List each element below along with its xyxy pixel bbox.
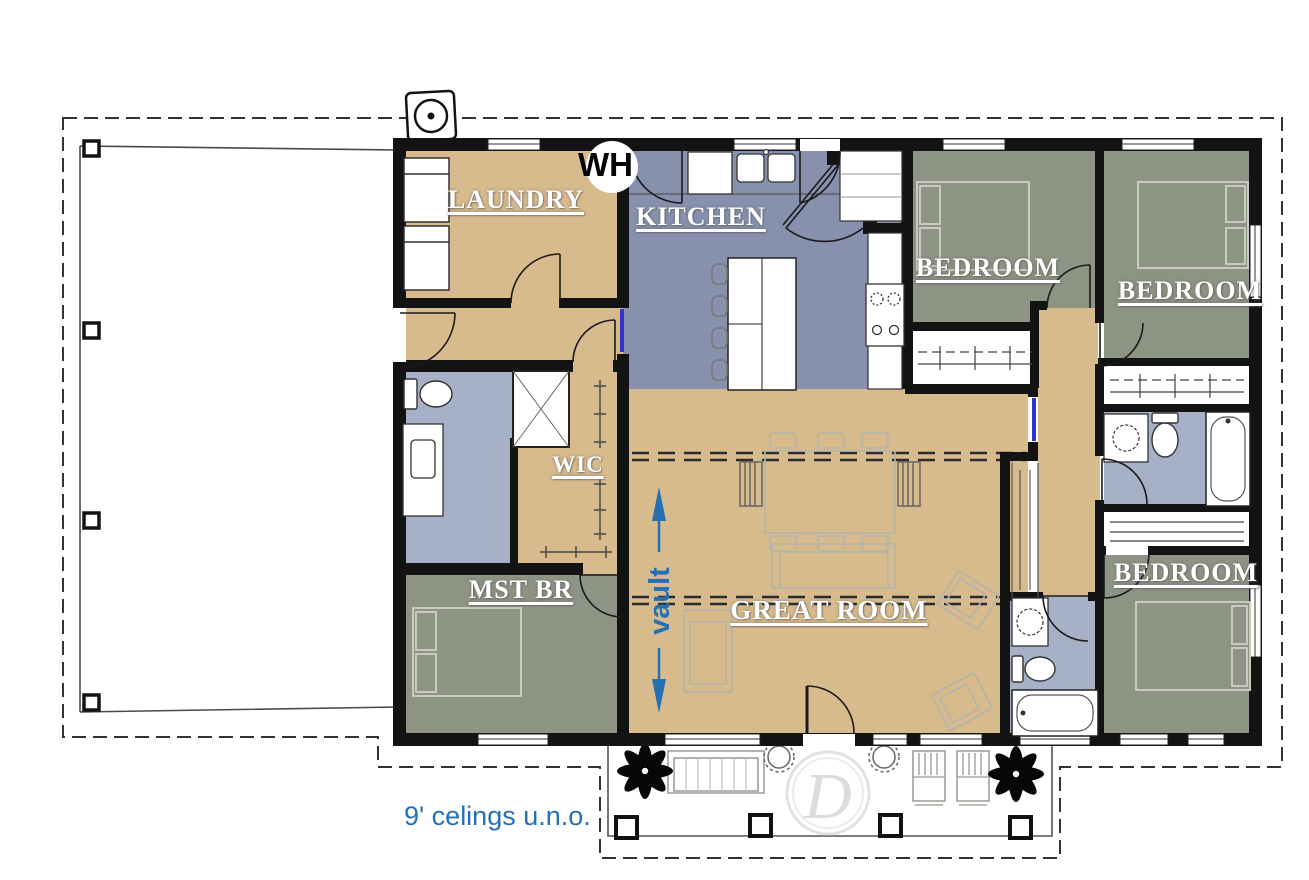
- carport: [80, 146, 398, 712]
- refrigerator: [688, 152, 732, 194]
- plant-icon: [988, 746, 1044, 802]
- plant-icon: [617, 743, 673, 799]
- bathtub: [1012, 690, 1098, 736]
- builder-logo: D: [787, 752, 869, 834]
- floor-plan-drawing: D: [0, 0, 1309, 880]
- bathtub: [1206, 412, 1250, 506]
- room-master-bedroom-floor: [401, 574, 623, 744]
- linen-closet: [1104, 512, 1250, 550]
- ceiling-fan-icon: [406, 91, 456, 141]
- carport-posts: [84, 141, 99, 710]
- toilet-icon: [1152, 413, 1178, 457]
- logo-letter: D: [803, 760, 852, 833]
- stove: [866, 284, 904, 346]
- vanity-sink: [1104, 414, 1148, 462]
- entry-nook-floor: [1038, 308, 1098, 388]
- pantry: [840, 151, 902, 221]
- floor-plan: D: [0, 0, 1309, 880]
- porch-bench: [668, 751, 764, 793]
- vanity-sink: [403, 424, 443, 516]
- toilet-icon: [1012, 656, 1055, 682]
- water-heater: [586, 141, 638, 193]
- front-porch: D: [608, 742, 1052, 838]
- toilet-icon: [404, 379, 452, 409]
- rocking-chairs: [913, 751, 989, 805]
- bedroom2-closet: [1104, 366, 1250, 406]
- shower: [513, 371, 569, 447]
- room-bedroom3-floor: [1104, 555, 1250, 744]
- hallway-floor: [1038, 388, 1100, 598]
